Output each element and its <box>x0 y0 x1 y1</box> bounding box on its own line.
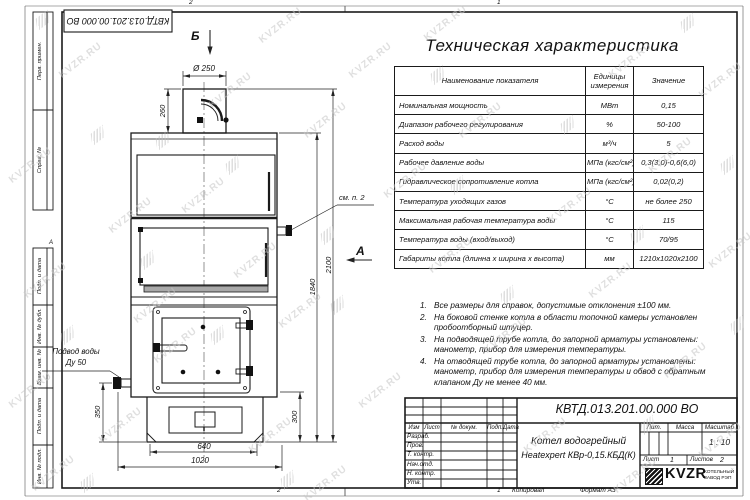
drawing-sheet: 2 1 2 1 А Копировал Формат А3 Перв. прим… <box>0 0 750 500</box>
cell-value: 115 <box>634 211 704 230</box>
brand-name: KVZR <box>665 467 706 483</box>
dim-chimney-height: 260 <box>158 91 168 131</box>
cell-units: °С <box>586 191 634 210</box>
note-text: Все размеры для справок, допустимые откл… <box>434 301 718 312</box>
tb-col-doc: № докум. <box>441 425 487 432</box>
dim-total-height: 2100 <box>324 245 334 285</box>
table-row: Номинальная мощностьМВт0,15 <box>395 96 704 115</box>
cell-units: °С <box>586 230 634 249</box>
cell-units: м³/ч <box>586 134 634 153</box>
note-number: 1. <box>420 301 434 312</box>
tb-scale-value: 1 : 10 <box>702 438 737 447</box>
cell-name: Номинальная мощность <box>395 96 586 115</box>
tb-col-data: Дата <box>503 425 517 432</box>
note-number: 2. <box>420 313 434 334</box>
table-row: Гидравлическое сопротивление котлаМПа (к… <box>395 172 704 191</box>
zone-label-left-a: А <box>49 240 53 247</box>
tb-col-podp: Подп. <box>487 425 503 432</box>
view-label-b: Б <box>191 30 200 43</box>
cell-value: 0,15 <box>634 96 704 115</box>
tb-row-tkontr: Т. контр. <box>407 452 434 459</box>
spec-title: Техническая характеристика <box>397 37 707 56</box>
title-block-name-line2: Heatexpert КВр-0,15.КБД(К) <box>517 451 640 461</box>
cell-name: Максимальная рабочая температура воды <box>395 211 586 230</box>
cell-name: Расход воды <box>395 134 586 153</box>
cell-value: 70/95 <box>634 230 704 249</box>
copied-label: Копировал <box>512 487 544 494</box>
boiler-front-view <box>113 82 292 462</box>
note-number: 4. <box>420 357 434 389</box>
sampling-fitting <box>277 225 292 236</box>
note-number: 3. <box>420 335 434 356</box>
cell-units: МПа (кгс/см²) <box>586 172 634 191</box>
cell-units: °С <box>586 211 634 230</box>
tb-scale-label: Масштаб <box>702 425 737 432</box>
tb-col-list: Лист <box>423 425 441 432</box>
spec-table: Наименование показателя Единицы измерени… <box>394 66 704 269</box>
border-col-perv-primen: Перв. примен. <box>35 16 45 106</box>
notes-list: 1.Все размеры для справок, допустимые от… <box>420 301 718 389</box>
tb-row-utv: Утв. <box>407 480 421 487</box>
zone-label-top-2: 2 <box>189 0 193 6</box>
dim-body-height: 1840 <box>308 267 318 307</box>
cell-name: Габариты котла (длинна х ширина х высота… <box>395 249 586 268</box>
format-label: Формат А3 <box>580 487 616 494</box>
tb-sheets-num: 2 <box>712 457 732 465</box>
border-col-podp-data-2: Подп. и дата <box>35 389 45 443</box>
border-col-podp-data-1: Подп. и дата <box>35 249 45 303</box>
tb-row-prov: Пров. <box>407 443 424 450</box>
dim-total-width: 1020 <box>179 457 221 466</box>
table-row: Рабочее давление водыМПа (кгс/см²)0,3(3,… <box>395 153 704 172</box>
table-row: Диапазон рабочего регулирования%50-100 <box>395 115 704 134</box>
dim-diameter: Ø 250 <box>182 65 226 74</box>
note-item: 3.На подводящей трубе котла, до запорной… <box>420 335 718 356</box>
tb-row-nkontr: Н. контр. <box>407 471 435 478</box>
cell-value: 0,3(3,0)-0,6(6,0) <box>634 153 704 172</box>
water-inlet-label-line2: Ду 50 <box>42 359 110 368</box>
doc-number-top: КВТД.013.201.00.000 ВО <box>64 10 172 32</box>
furnace-door-panel <box>153 307 250 393</box>
dim-base-width: 640 <box>184 443 224 452</box>
cell-value: 1210х1020х2100 <box>634 249 704 268</box>
note-item: 2.На боковой стенке котла в области топо… <box>420 313 718 334</box>
border-col-inv-podl: Инв. № подл. <box>35 445 45 487</box>
dim-inlet-height: 350 <box>93 392 103 432</box>
cell-name: Гидравлическое сопротивление котла <box>395 172 586 191</box>
tb-mass-label: Масса <box>668 425 702 432</box>
title-block-name-line1: Котел водогрейный <box>519 436 638 447</box>
table-row: Температура воды (вход/выход)°С70/95 <box>395 230 704 249</box>
tb-lit-label: Лит. <box>640 425 668 432</box>
cell-value: 50-100 <box>634 115 704 134</box>
spec-col-name: Наименование показателя <box>395 67 586 96</box>
border-col-sprav-no: Справ. № <box>35 115 45 205</box>
cell-name: Диапазон рабочего регулирования <box>395 115 586 134</box>
title-block-doc-number: КВТД.013.201.00.000 ВО <box>517 403 737 417</box>
tb-sheet-num: 1 <box>662 457 682 465</box>
cell-units: % <box>586 115 634 134</box>
kvzr-logo-icon <box>645 468 663 485</box>
see-note-callout: см. п. 2 <box>339 194 365 202</box>
dim-base-height: 300 <box>290 397 300 437</box>
cell-name: Температура уходящих газов <box>395 191 586 210</box>
zone-label-bottom-2: 2 <box>277 487 281 494</box>
zone-label-bottom-1: 1 <box>497 487 501 494</box>
upper-door <box>137 155 275 215</box>
water-inlet-label-line1: Подвод воды <box>42 348 110 357</box>
tb-sheets-label: Листов <box>690 457 713 464</box>
ash-tray <box>144 286 268 292</box>
cell-units: МВт <box>586 96 634 115</box>
table-row: Температура уходящих газов°Сне более 250 <box>395 191 704 210</box>
zone-label-top-1: 1 <box>497 0 501 6</box>
boiler-base <box>147 397 263 442</box>
cell-units: мм <box>586 249 634 268</box>
cell-name: Рабочее давление воды <box>395 153 586 172</box>
tb-col-izm: Изм <box>405 425 423 432</box>
note-item: 1.Все размеры для справок, допустимые от… <box>420 301 718 312</box>
note-text: На боковой стенке котла в области топочн… <box>434 313 718 334</box>
spec-col-value: Значение <box>634 67 704 96</box>
border-col-inv-dubl: Инв. № дубл. <box>35 306 45 346</box>
note-text: На подводящей трубе котла, до запорной а… <box>434 335 718 356</box>
cell-value: не более 250 <box>634 191 704 210</box>
tb-row-razrab: Разраб. <box>407 434 430 441</box>
tb-row-nachotd: Нач.отд. <box>407 462 434 469</box>
cell-name: Температура воды (вход/выход) <box>395 230 586 249</box>
table-row: Максимальная рабочая температура воды°С1… <box>395 211 704 230</box>
spec-header-row: Наименование показателя Единицы измерени… <box>395 67 704 96</box>
note-item: 4.На отводящей трубе котла, до запорной … <box>420 357 718 389</box>
view-label-a: А <box>356 245 365 258</box>
brand-line2: ЗАВОД РЭП <box>704 476 731 481</box>
brand-line1: КОТЕЛЬНЫЙ <box>704 470 734 475</box>
tb-sheet-label: Лист <box>643 457 659 464</box>
note-text: На отводящей трубе котла, до запорной ар… <box>434 357 718 389</box>
table-row: Габариты котла (длинна х ширина х высота… <box>395 249 704 268</box>
cell-value: 0,02(0,2) <box>634 172 704 191</box>
cell-value: 5 <box>634 134 704 153</box>
cell-units: МПа (кгс/см²) <box>586 153 634 172</box>
spec-col-units: Единицы измерения <box>586 67 634 96</box>
table-row: Расход водым³/ч5 <box>395 134 704 153</box>
